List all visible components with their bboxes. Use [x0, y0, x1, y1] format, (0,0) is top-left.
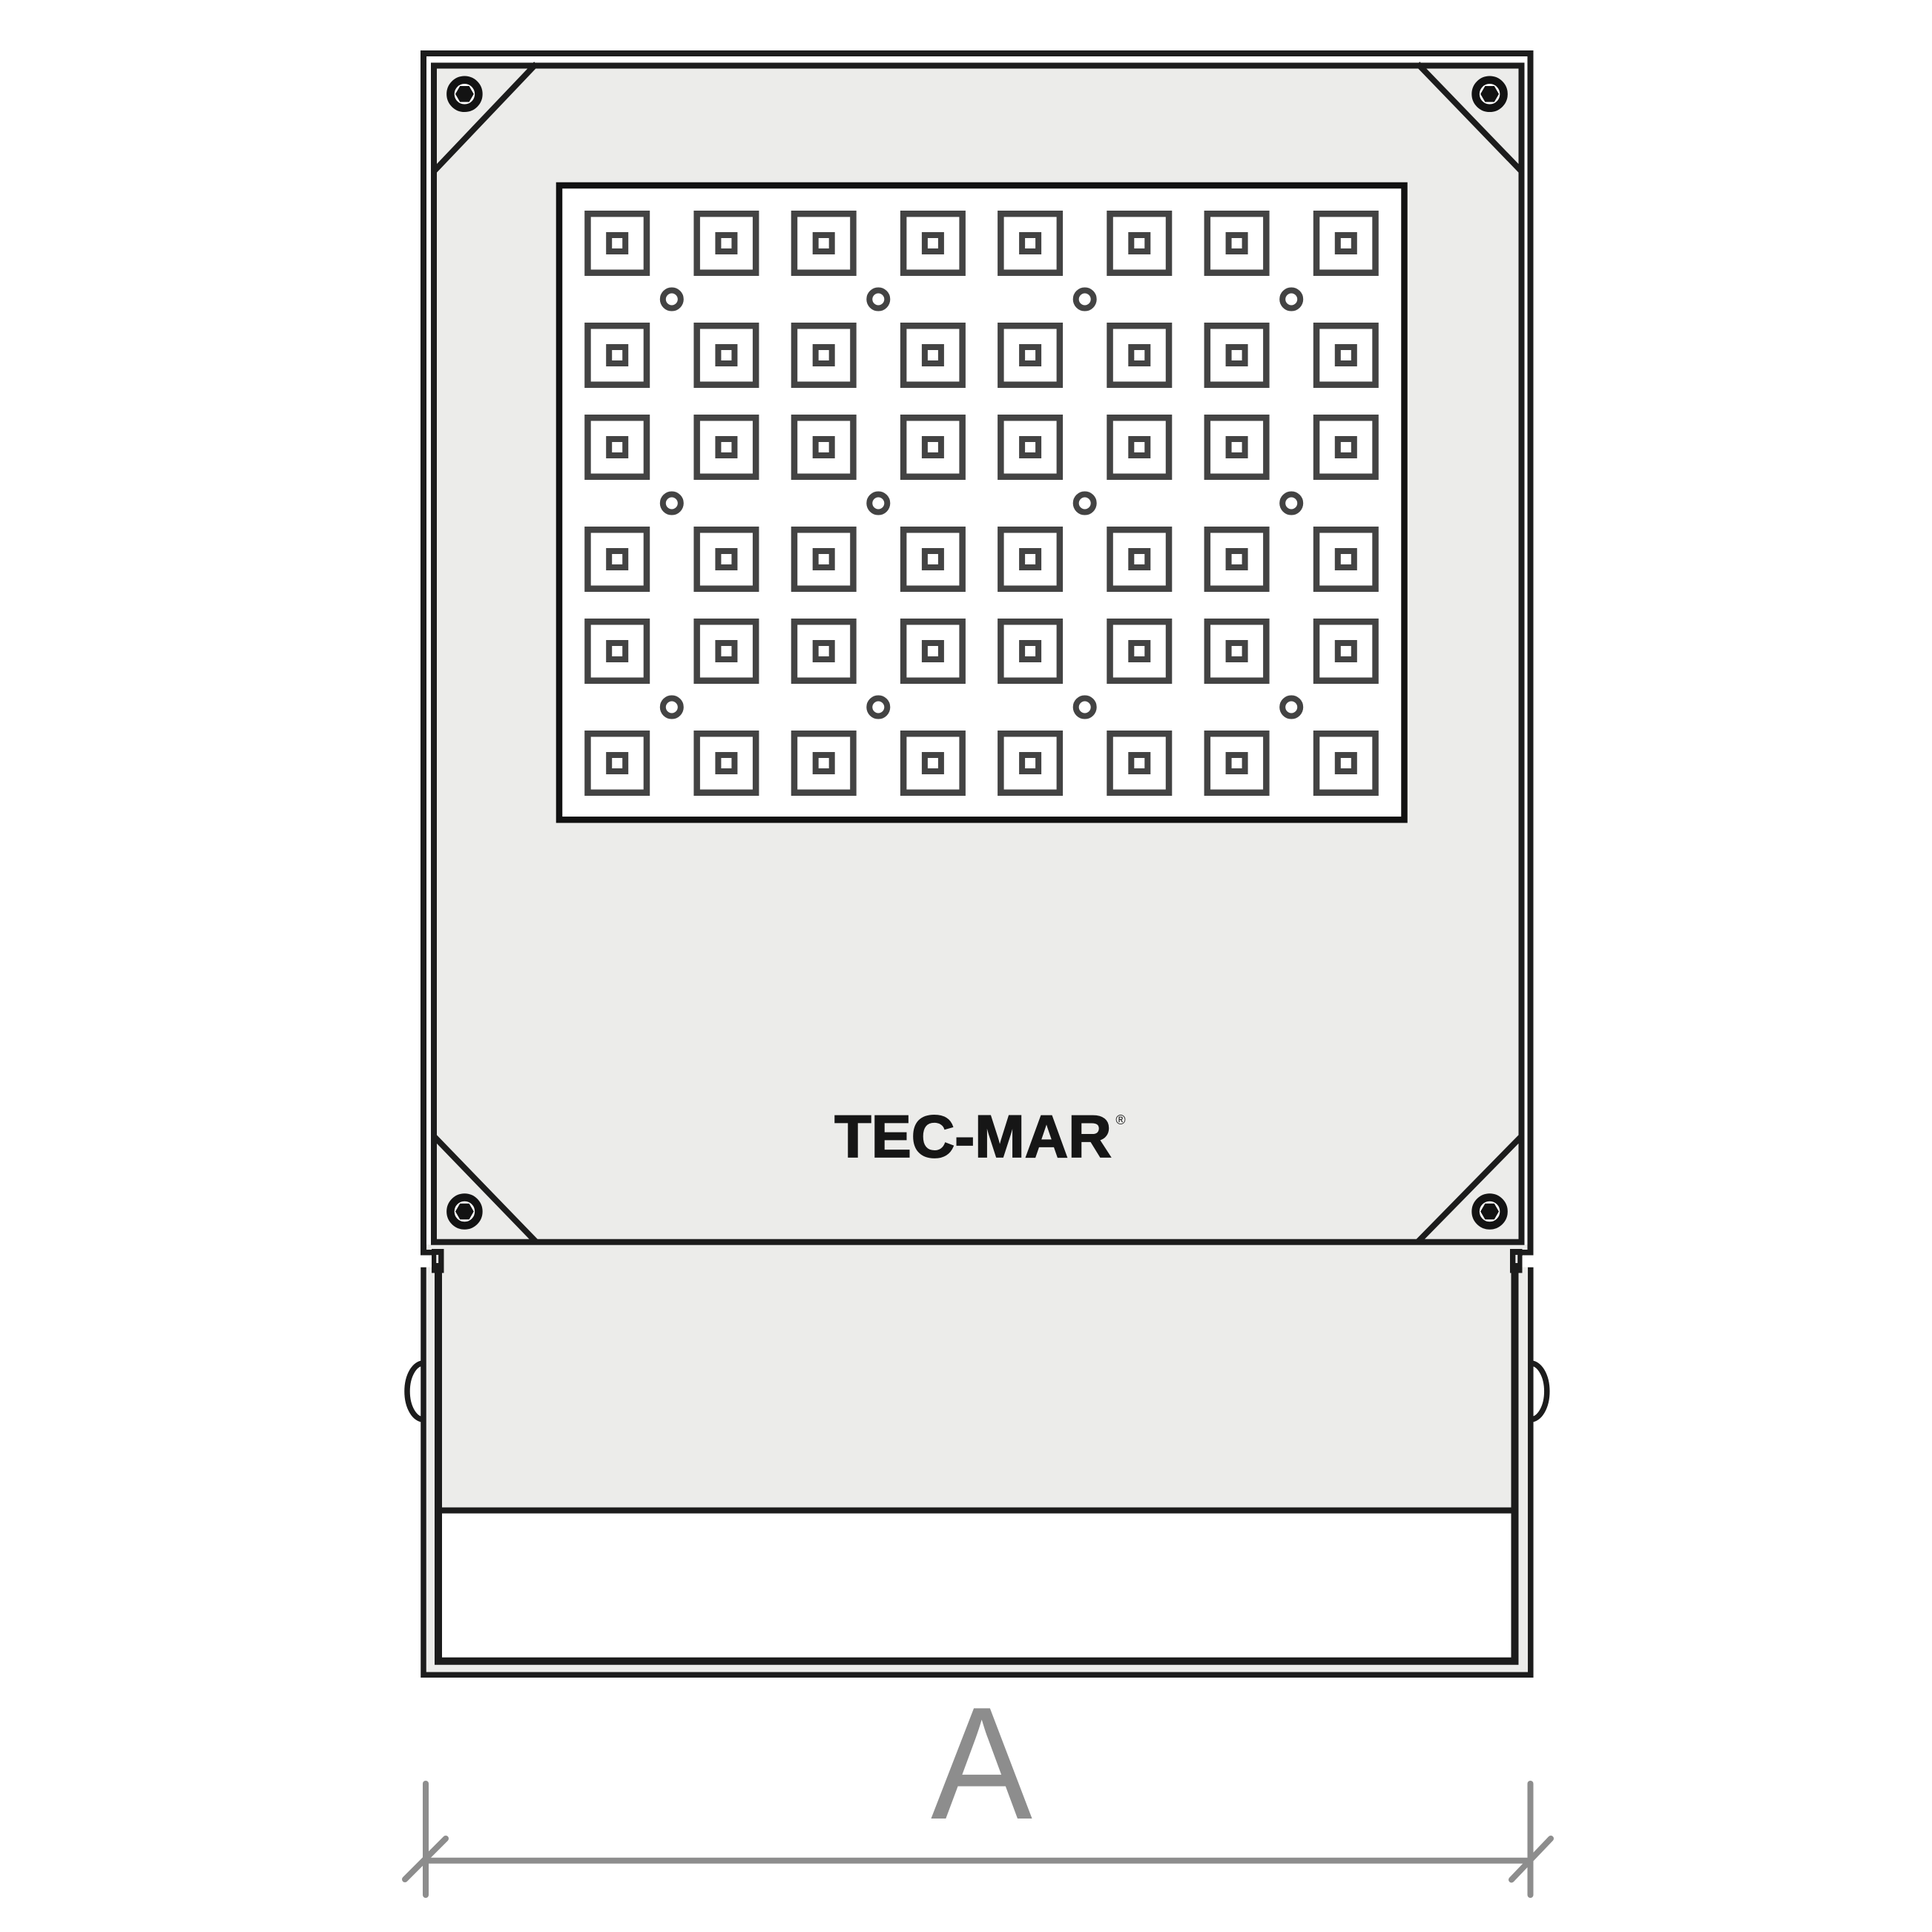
svg-text:A: A	[931, 1673, 1032, 1853]
svg-text:®: ®	[1115, 1112, 1125, 1127]
svg-text:TEC-MAR: TEC-MAR	[834, 1104, 1111, 1170]
